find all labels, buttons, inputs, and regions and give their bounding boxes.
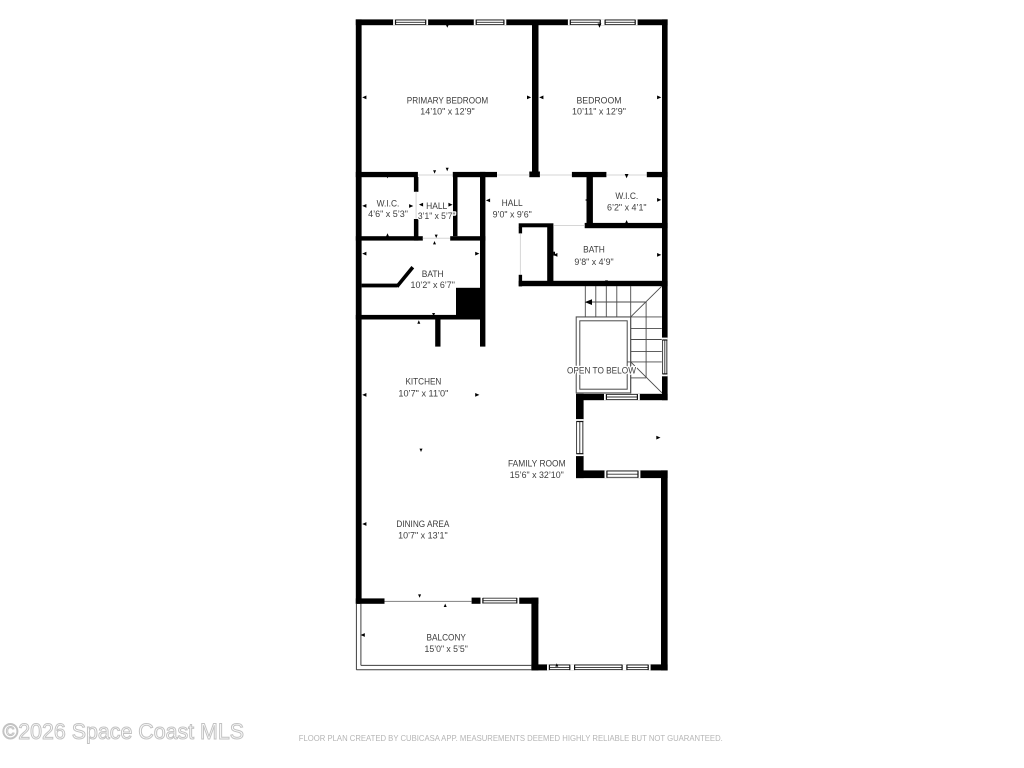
svg-text:OPEN TO BELOW: OPEN TO BELOW xyxy=(567,365,637,376)
svg-text:W.I.C.: W.I.C. xyxy=(615,191,638,202)
svg-text:15’6" x 32’10": 15’6" x 32’10" xyxy=(510,470,564,481)
svg-text:14’10" x 12’9": 14’10" x 12’9" xyxy=(420,107,474,118)
svg-text:©2026 Space Coast MLS: ©2026 Space Coast MLS xyxy=(3,719,245,744)
svg-text:FLOOR PLAN CREATED BY CUBICASA: FLOOR PLAN CREATED BY CUBICASA APP. MEAS… xyxy=(299,733,723,743)
svg-text:3’1" x 5’7": 3’1" x 5’7" xyxy=(418,211,456,222)
svg-text:10’7" x 11’0": 10’7" x 11’0" xyxy=(398,388,448,399)
svg-text:DINING AREA: DINING AREA xyxy=(396,519,450,530)
svg-text:10’7" x 13’1": 10’7" x 13’1" xyxy=(398,530,448,541)
svg-text:HALL: HALL xyxy=(502,198,524,209)
svg-text:9’8" x 4’9": 9’8" x 4’9" xyxy=(574,257,613,268)
svg-text:BALCONY: BALCONY xyxy=(427,633,467,644)
svg-text:6’2" x 4’1": 6’2" x 4’1" xyxy=(607,202,647,213)
svg-text:KITCHEN: KITCHEN xyxy=(405,377,441,388)
svg-text:10’11" x 12’9": 10’11" x 12’9" xyxy=(572,107,626,118)
svg-text:9’0" x 9’6": 9’0" x 9’6" xyxy=(493,210,532,221)
svg-text:BATH: BATH xyxy=(422,269,444,280)
svg-text:BATH: BATH xyxy=(583,245,605,256)
svg-text:10’2" x 6’7": 10’2" x 6’7" xyxy=(411,280,455,291)
svg-text:W.I.C.: W.I.C. xyxy=(377,199,400,210)
svg-text:FAMILY ROOM: FAMILY ROOM xyxy=(508,459,566,470)
svg-text:PRIMARY BEDROOM: PRIMARY BEDROOM xyxy=(407,95,489,106)
svg-text:15’0" x 5’5": 15’0" x 5’5" xyxy=(425,644,468,655)
svg-text:4’6" x 5’3": 4’6" x 5’3" xyxy=(368,209,408,220)
svg-text:BEDROOM: BEDROOM xyxy=(576,95,621,106)
